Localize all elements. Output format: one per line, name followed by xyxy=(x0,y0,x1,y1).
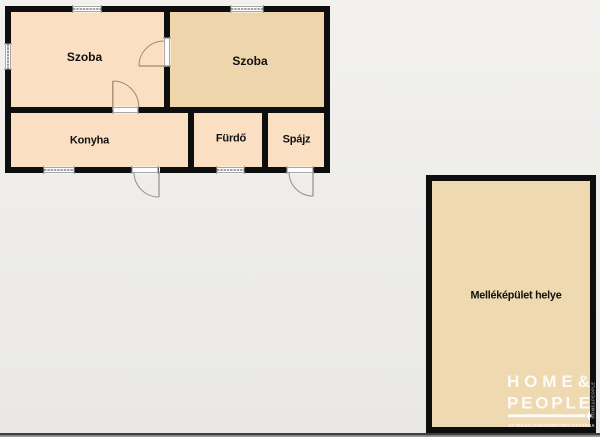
svg-text:Szoba: Szoba xyxy=(67,50,103,64)
svg-text:PEOPLE: PEOPLE xyxy=(507,394,593,413)
svg-text:Szoba: Szoba xyxy=(232,54,268,68)
svg-text:Konyha: Konyha xyxy=(70,135,110,147)
svg-text:Spájz: Spájz xyxy=(283,134,311,146)
svg-text:HOME&PEOPLE: HOME&PEOPLE xyxy=(591,382,596,419)
svg-text:AZ INGATLANKÖZVETÍTÉS OTTHONA: AZ INGATLANKÖZVETÍTÉS OTTHONA xyxy=(508,423,595,428)
svg-text:Melléképület helye: Melléképület helye xyxy=(471,290,562,302)
svg-text:HOME&: HOME& xyxy=(507,372,595,391)
svg-text:Fürdő: Fürdő xyxy=(216,133,247,145)
